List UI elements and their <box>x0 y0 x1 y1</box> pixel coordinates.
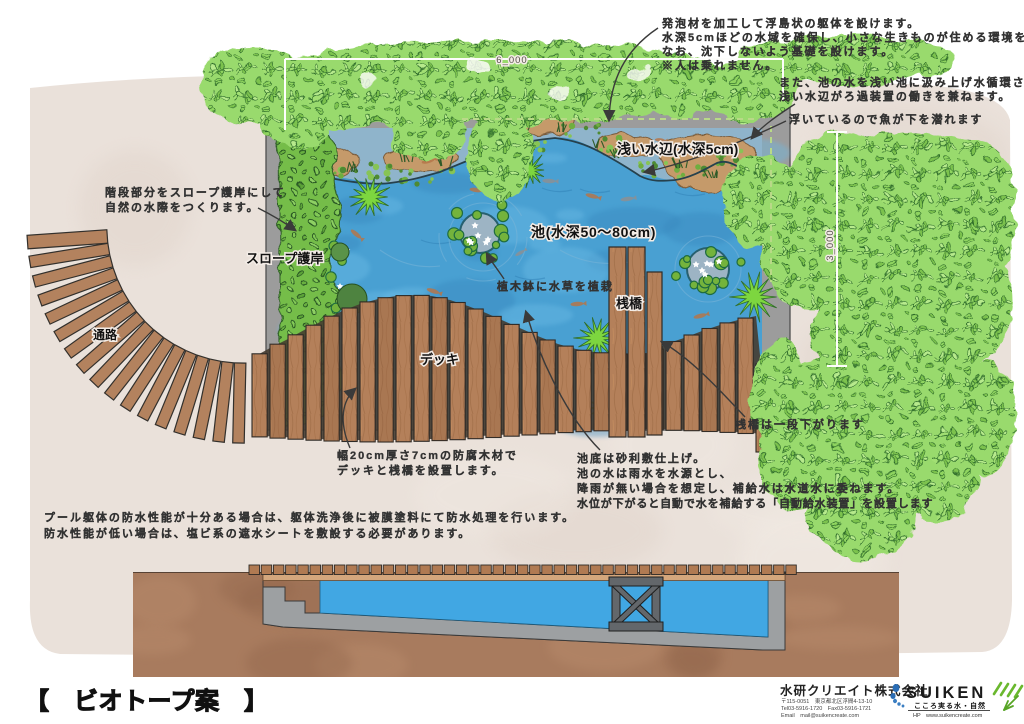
svg-text:デッキと桟橋を設置します。: デッキと桟橋を設置します。 <box>337 463 505 477</box>
svg-text:池の水は雨水を水源とし、: 池の水は雨水を水源とし、 <box>577 466 733 480</box>
svg-text:自然の水際をつくります。: 自然の水際をつくります。 <box>105 200 260 214</box>
svg-text:SUIKEN: SUIKEN <box>906 684 986 702</box>
svg-text:幅20cm厚さ7cmの防腐木材で: 幅20cm厚さ7cmの防腐木材で <box>337 448 518 462</box>
svg-text:桟橋: 桟橋 <box>616 296 643 311</box>
svg-text:植木鉢に水草を植栽: 植木鉢に水草を植栽 <box>496 279 614 293</box>
svg-text:Email mail@suikencreate.com: Email mail@suikencreate.com <box>781 713 859 719</box>
svg-text:スロープ護岸: スロープ護岸 <box>246 251 323 266</box>
svg-text:HP www.suikencreate.com: HP www.suikencreate.com <box>913 713 983 719</box>
svg-text:浅い水辺がろ過装置の働きを兼ねます。: 浅い水辺がろ過装置の働きを兼ねます。 <box>779 89 1012 103</box>
svg-text:Tel03-5916-1720 Fax03-5916-172: Tel03-5916-1720 Fax03-5916-1721 <box>781 706 871 712</box>
svg-text:浅い水辺(水深5cm): 浅い水辺(水深5cm) <box>617 141 738 157</box>
svg-text:池(水深50〜80cm): 池(水深50〜80cm) <box>531 224 656 240</box>
svg-text:※人は乗れません。: ※人は乗れません。 <box>662 58 779 72</box>
svg-text:階段部分をスロープ護岸にして: 階段部分をスロープ護岸にして <box>105 185 286 199</box>
svg-text:〒115-0051 東京都北区浮間4-13-10: 〒115-0051 東京都北区浮間4-13-10 <box>781 697 872 705</box>
svg-text:3_000: 3_000 <box>825 229 836 260</box>
svg-text:6_000: 6_000 <box>496 55 527 66</box>
svg-text:なお、沈下しないよう基礎を設けます。: なお、沈下しないよう基礎を設けます。 <box>662 44 894 58</box>
svg-text:降雨が無い場合を想定し、補給水は水道水に委ねます。: 降雨が無い場合を想定し、補給水は水道水に委ねます。 <box>577 481 900 495</box>
svg-text:【 ビオトープ案 】: 【 ビオトープ案 】 <box>25 687 269 715</box>
svg-text:水位が下がると自動で水を補給する「自動給水装置」を設置します: 水位が下がると自動で水を補給する「自動給水装置」を設置します <box>577 496 933 510</box>
svg-text:発泡材を加工して浮島状の躯体を設けます。: 発泡材を加工して浮島状の躯体を設けます。 <box>661 16 920 30</box>
svg-text:通路: 通路 <box>93 327 118 342</box>
svg-text:浮いているので魚が下を潜れます: 浮いているので魚が下を潜れます <box>789 112 983 126</box>
svg-text:水深5cmほどの水域を確保し、小さな生きものが住める環境をつ: 水深5cmほどの水域を確保し、小さな生きものが住める環境をつくります。 <box>662 30 1024 44</box>
svg-text:防水性能が低い場合は、塩ビ系の遮水シートを敷設する必要があり: 防水性能が低い場合は、塩ビ系の遮水シートを敷設する必要があります。 <box>44 526 471 540</box>
svg-text:桟橋は一段下がります: 桟橋は一段下がります <box>735 417 865 431</box>
svg-text:また、池の水を浅い池に汲み上げ水循環させます。: また、池の水を浅い池に汲み上げ水循環させます。 <box>779 75 1024 89</box>
svg-text:プール躯体の防水性能が十分ある場合は、躯体洗浄後に被膜塗料に: プール躯体の防水性能が十分ある場合は、躯体洗浄後に被膜塗料にて防水処理を行います… <box>44 510 575 524</box>
svg-text:デッキ: デッキ <box>420 352 459 367</box>
svg-text:こころ実る水・自然: こころ実る水・自然 <box>914 701 986 710</box>
svg-text:池底は砂利敷仕上げ。: 池底は砂利敷仕上げ。 <box>577 451 706 465</box>
